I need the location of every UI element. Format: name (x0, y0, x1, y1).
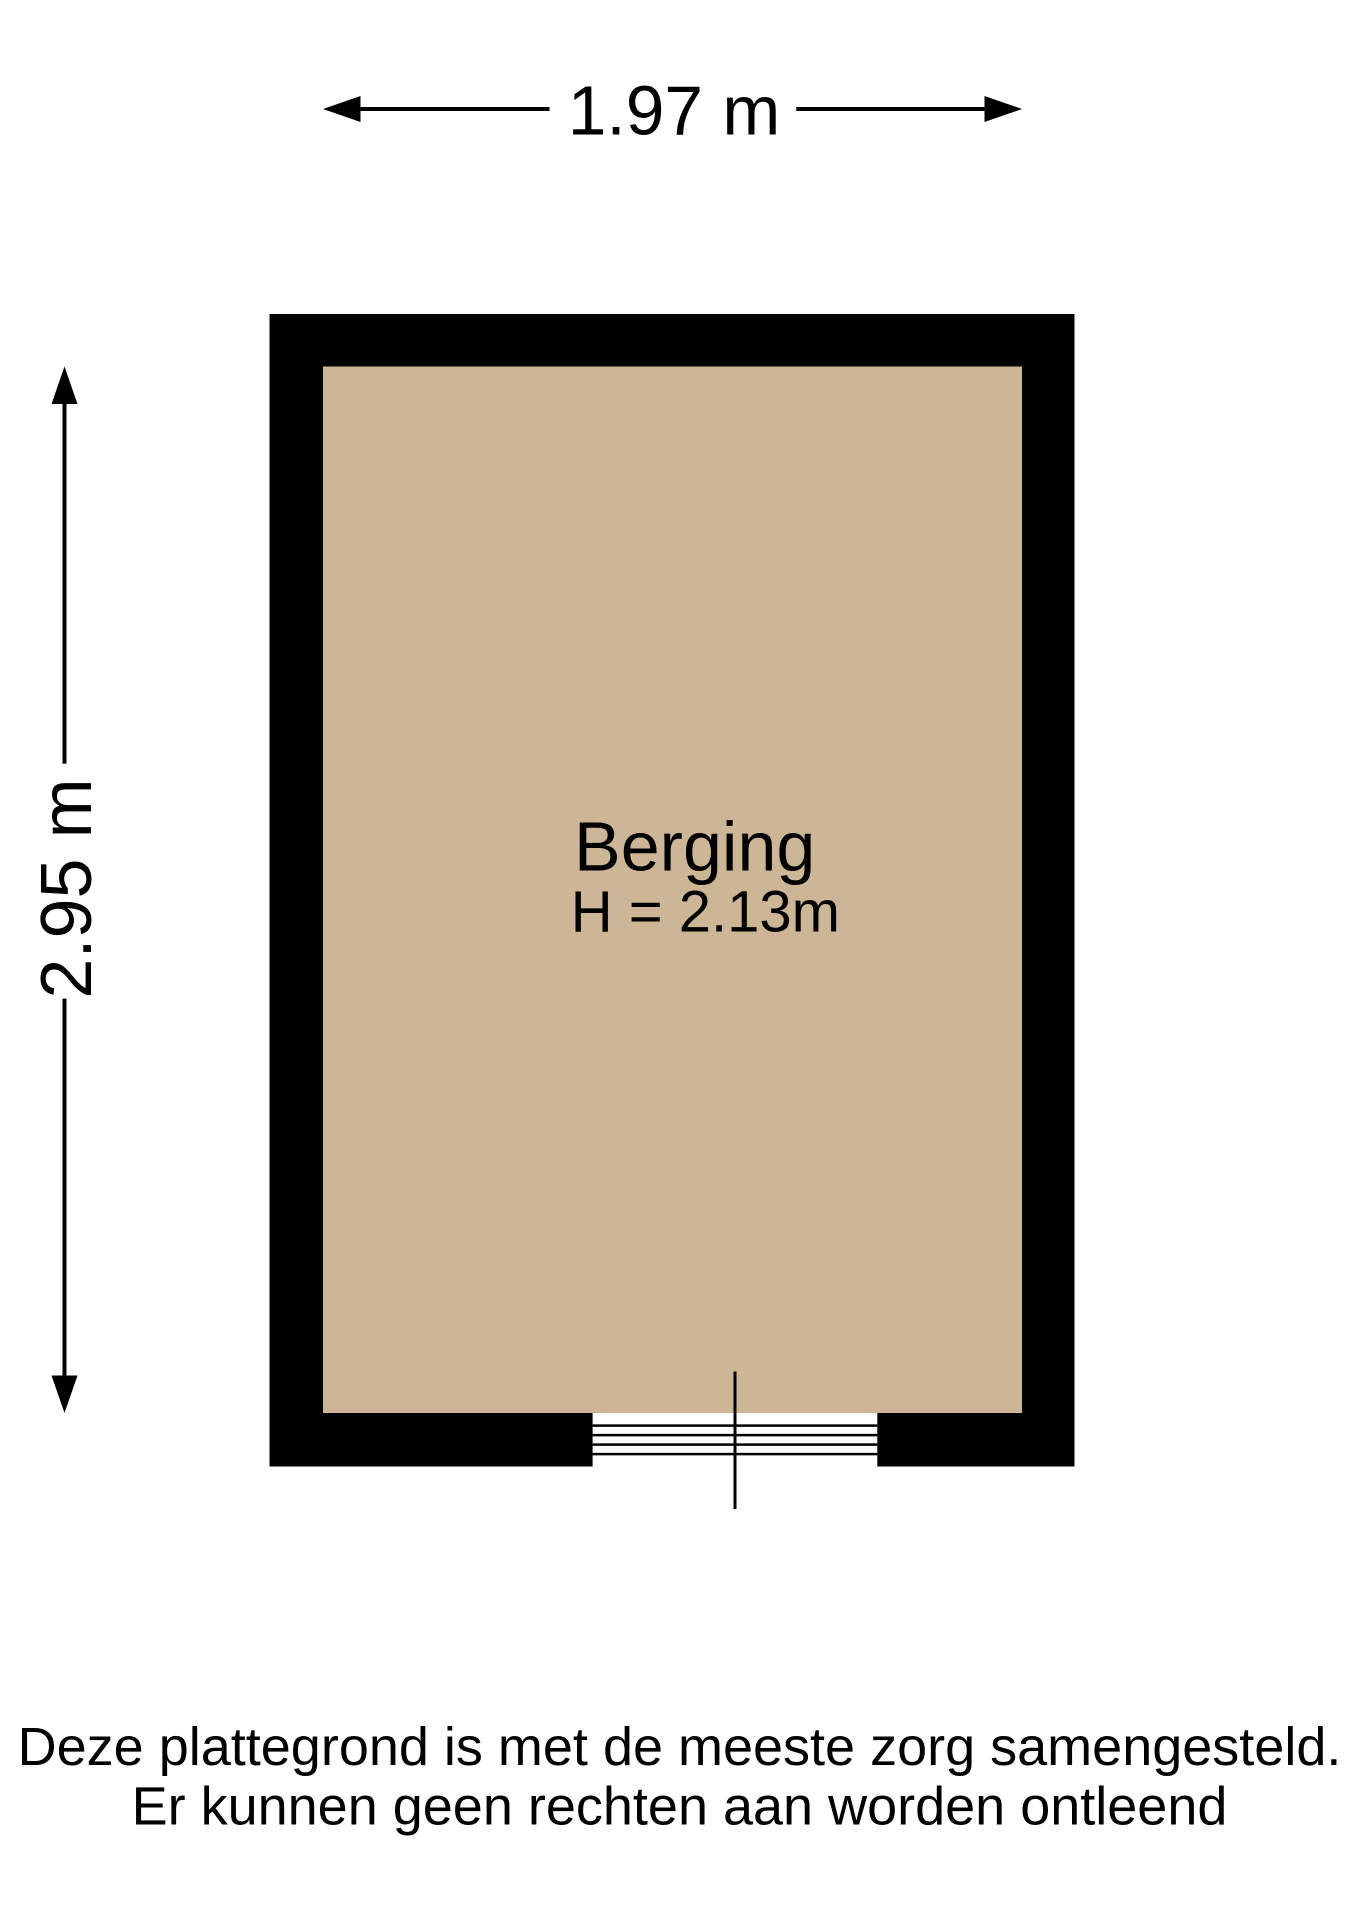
svg-text:2.95 m: 2.95 m (27, 778, 107, 998)
svg-text:1.97 m: 1.97 m (568, 72, 780, 150)
svg-text:Berging: Berging (574, 808, 815, 886)
svg-text:Deze plattegrond is met de mee: Deze plattegrond is met de meeste zorg s… (18, 1717, 1342, 1777)
svg-text:H = 2.13m: H = 2.13m (571, 880, 840, 945)
svg-text:Er kunnen geen rechten aan wor: Er kunnen geen rechten aan worden ontlee… (132, 1777, 1228, 1837)
